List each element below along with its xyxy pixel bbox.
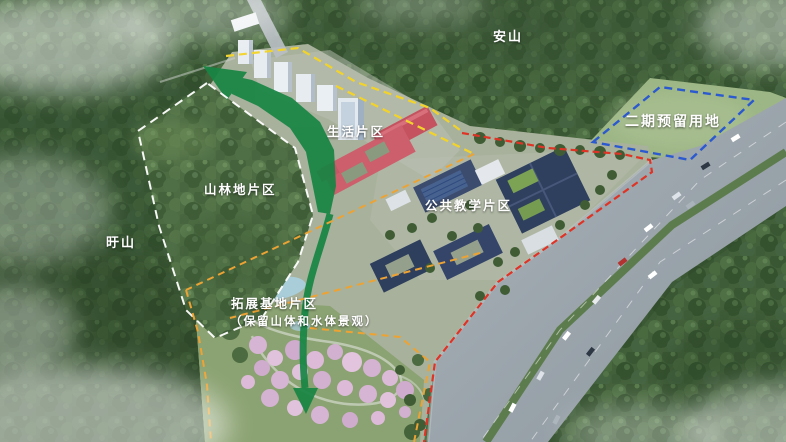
- label-phase2-reserved: 二期预留用地: [625, 113, 721, 129]
- label-teaching-zone: 公共教学片区: [425, 198, 512, 213]
- label-forest-zone: 山林地片区: [204, 182, 277, 197]
- label-extension-zone-line1: 拓展基地片区: [231, 296, 318, 311]
- masterplan-aerial-image: 安山 二期预留用地 生活片区 山林地片区 旴山 公共教学片区 拓展基地片区 （保…: [0, 0, 786, 442]
- label-living-zone: 生活片区: [327, 124, 385, 139]
- label-mountain-top: 安山: [493, 29, 523, 44]
- masterplan-svg: 安山 二期预留用地 生活片区 山林地片区 旴山 公共教学片区 拓展基地片区 （保…: [0, 0, 786, 442]
- label-mountain-left: 旴山: [106, 235, 136, 250]
- label-extension-zone-line2: （保留山体和水体景观）: [230, 314, 379, 328]
